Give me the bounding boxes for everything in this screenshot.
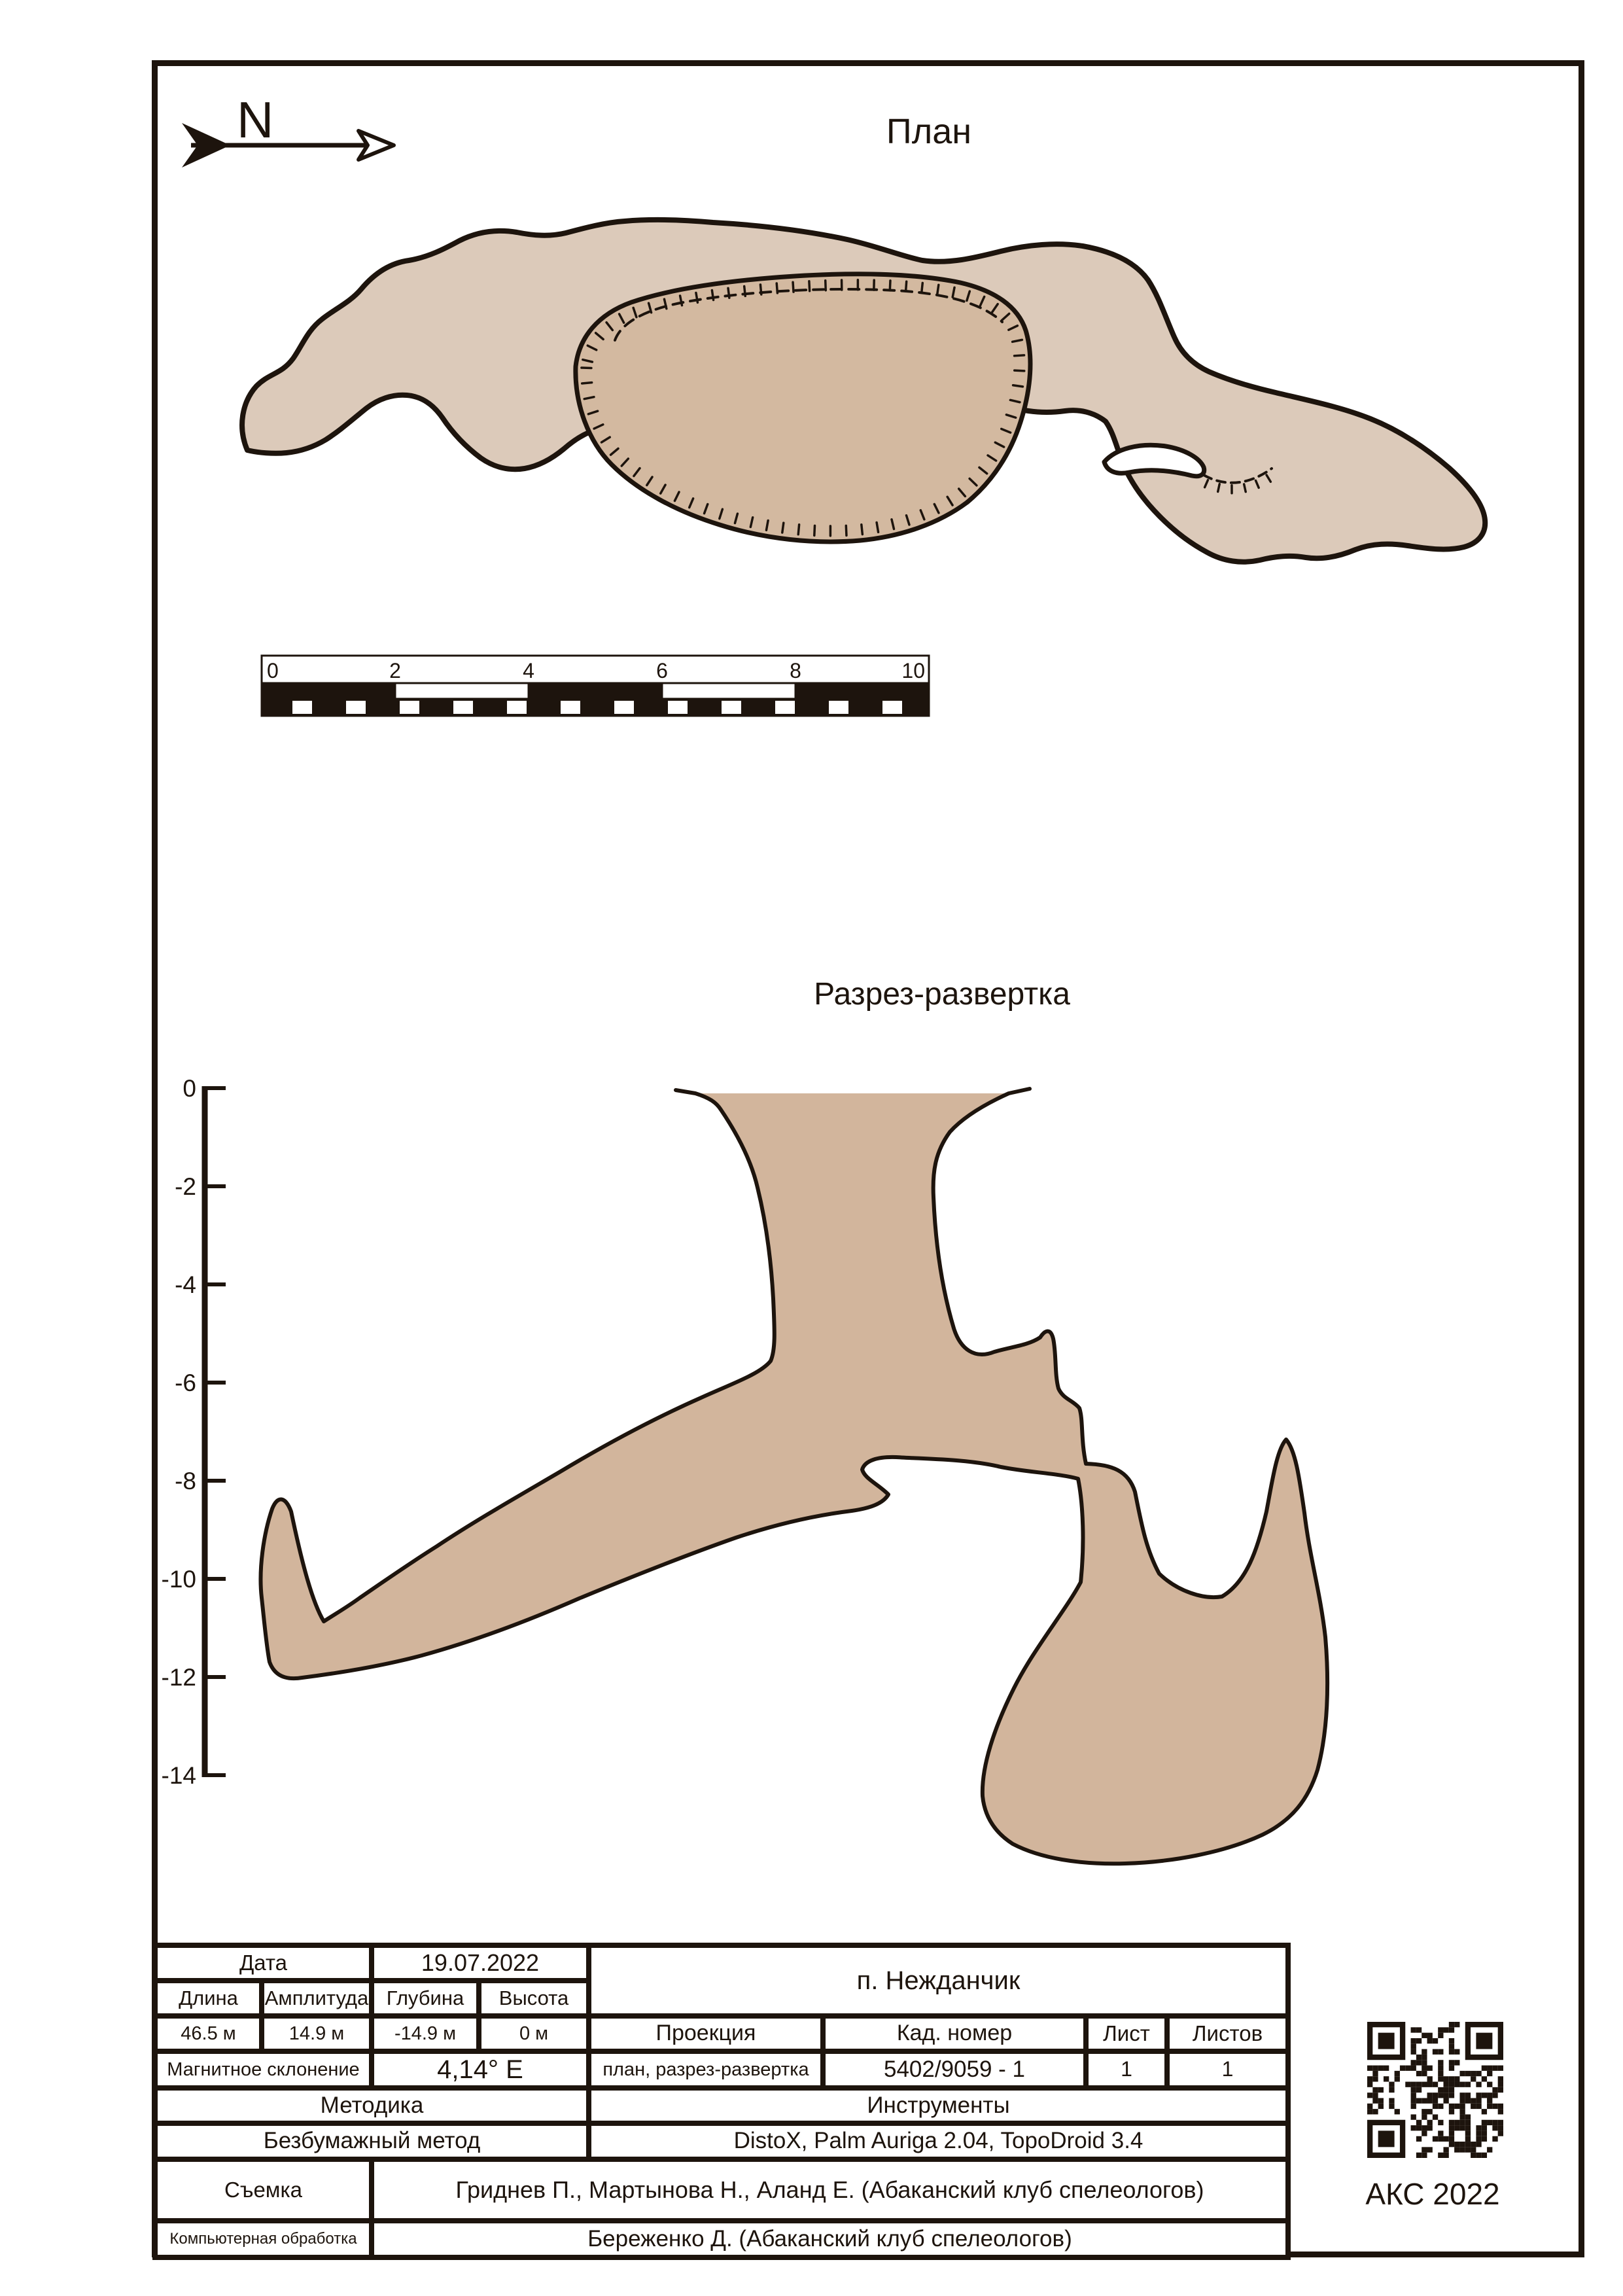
scale-label-4: 4	[523, 659, 534, 682]
height-value: 0 м	[481, 2019, 586, 2049]
date-value: 19.07.2022	[374, 1948, 586, 1978]
depth-label-12: -12	[162, 1664, 196, 1691]
depth-axis: 0 -2 -4 -6 -8 -10 -12 -14	[162, 1075, 226, 1789]
cad-number-value: 5402/9059 - 1	[826, 2054, 1083, 2085]
depth-value: -14.9 м	[374, 2019, 476, 2049]
sheet-label: Лист	[1089, 2019, 1164, 2049]
plan-view	[242, 220, 1485, 562]
amplitude-label: Амплитуда	[264, 1983, 369, 2013]
section-cave-fill	[260, 1093, 1327, 1863]
depth-label-2: -2	[175, 1173, 196, 1200]
method-value: Безбумажный метод	[158, 2126, 586, 2157]
scale-label-6: 6	[656, 659, 668, 682]
depth-label: Глубина	[374, 1983, 476, 2013]
depth-label-10: -10	[162, 1566, 196, 1593]
projection-label: Проекция	[591, 2019, 820, 2049]
depth-label-8: -8	[175, 1468, 196, 1494]
processing-value: Береженко Д. (Абаканский клуб спелеолого…	[374, 2223, 1285, 2255]
sheets-value: 1	[1170, 2054, 1285, 2085]
survey-label: Съемка	[158, 2162, 369, 2218]
depth-label-14: -14	[162, 1762, 196, 1789]
scale-label-2: 2	[389, 659, 401, 682]
declination-label: Магнитное склонение	[158, 2054, 369, 2085]
date-label: Дата	[158, 1948, 369, 1978]
scale-label-0: 0	[267, 659, 279, 682]
method-label: Методика	[158, 2091, 586, 2121]
scale-bar: 0 2 4 6 8 10	[262, 656, 929, 716]
depth-label-4: -4	[175, 1271, 196, 1298]
declination-value: 4,14° E	[374, 2054, 586, 2085]
scale-label-8: 8	[790, 659, 801, 682]
scale-label-10: 10	[901, 659, 925, 682]
sheet-value: 1	[1089, 2054, 1164, 2085]
projection-value: план, разрез-развертка	[591, 2054, 820, 2085]
qr-code	[1367, 2022, 1503, 2158]
cad-number-label: Кад. номер	[826, 2019, 1083, 2049]
survey-value: Гриднев П., Мартынова Н., Аланд Е. (Абак…	[374, 2162, 1285, 2218]
instruments-label: Инструменты	[591, 2091, 1285, 2121]
length-label: Длина	[158, 1983, 259, 2013]
amplitude-value: 14.9 м	[264, 2019, 369, 2049]
instruments-value: DistoX, Palm Auriga 2.04, TopoDroid 3.4	[591, 2126, 1285, 2157]
sheets-label: Листов	[1170, 2019, 1285, 2049]
cross-section	[260, 1089, 1327, 1863]
cave-name: п. Нежданчик	[591, 1948, 1285, 2013]
height-label: Высота	[481, 1983, 586, 2013]
depth-label-6: -6	[175, 1369, 196, 1396]
processing-label: Компьютерная обработка	[158, 2223, 369, 2255]
survey-info-table: Дата 19.07.2022 п. Нежданчик Длина Ампли…	[155, 1945, 1288, 2257]
depth-label-0: 0	[183, 1075, 196, 1102]
length-value: 46.5 м	[158, 2019, 259, 2049]
